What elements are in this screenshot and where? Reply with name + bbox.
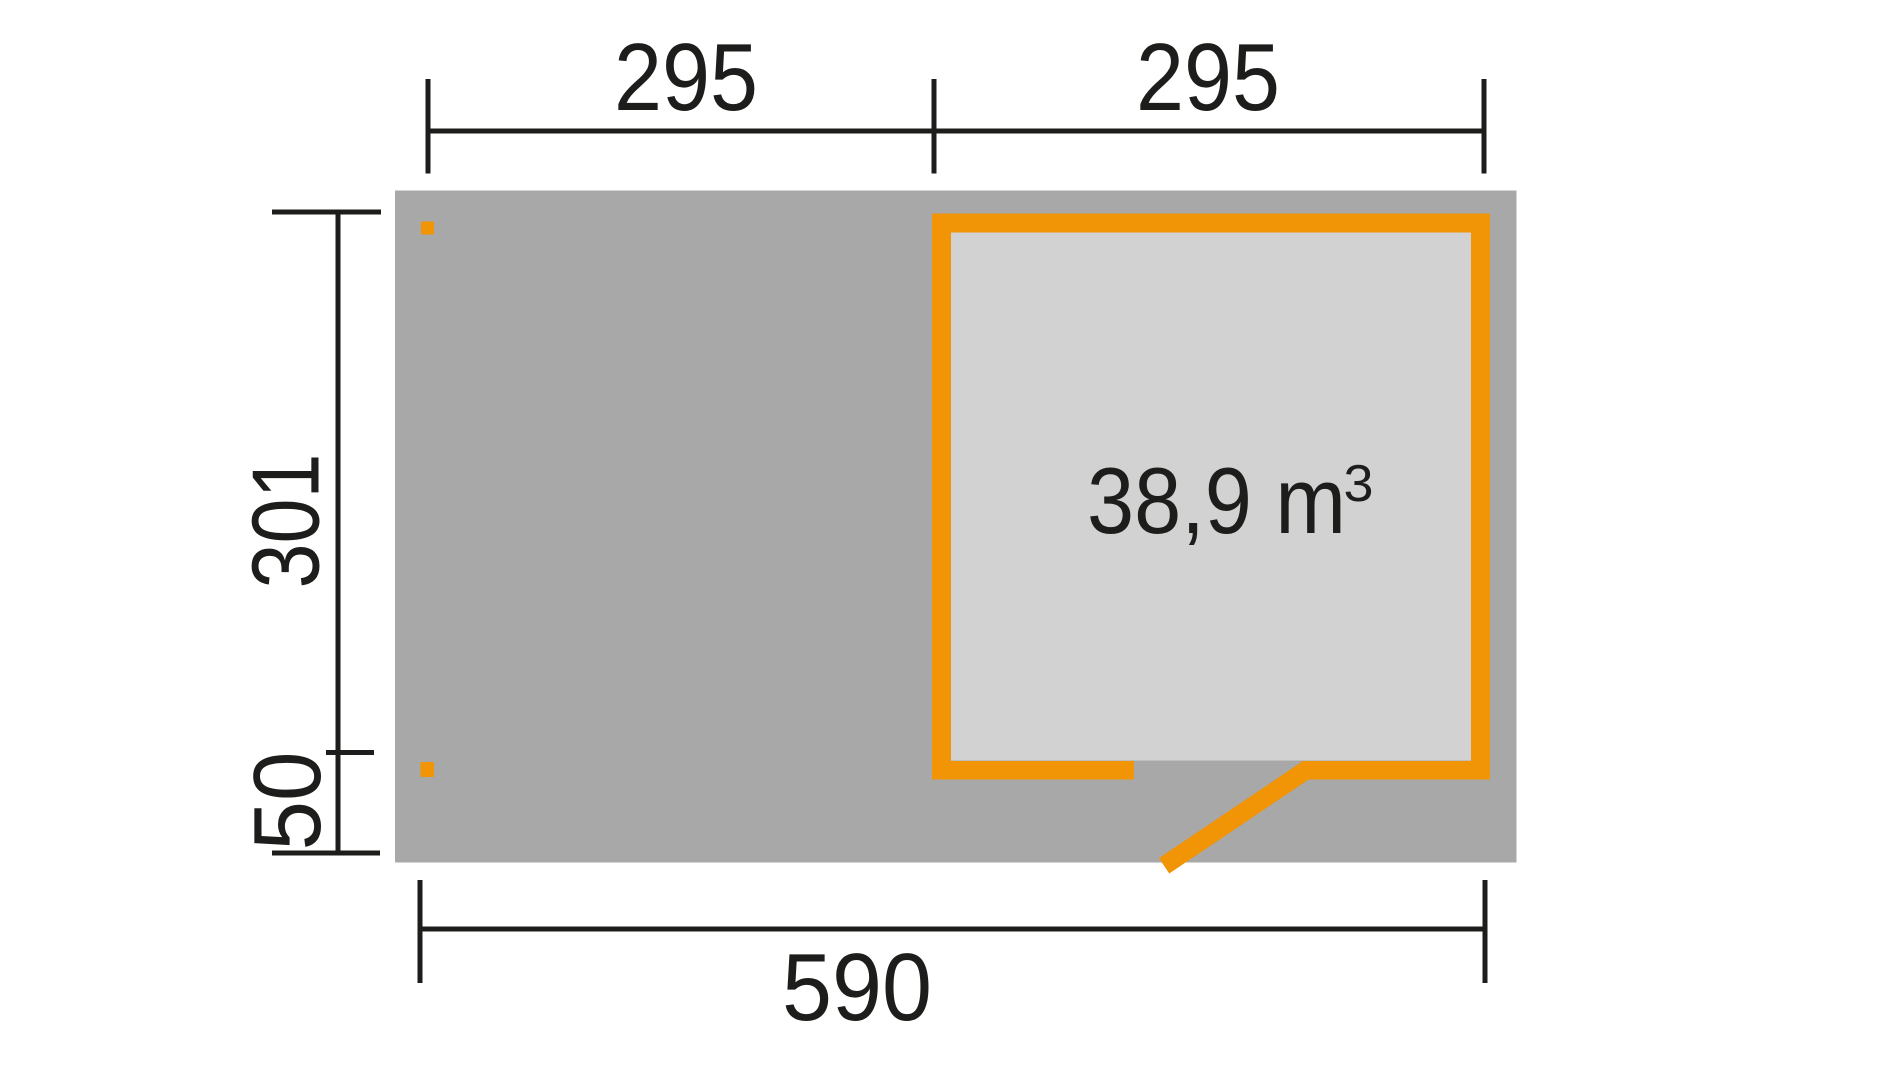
svg-text:38,9 m: 38,9 m [1087,448,1346,553]
svg-text:295: 295 [1136,24,1280,131]
svg-text:301: 301 [233,454,340,589]
svg-text:3: 3 [1344,455,1374,513]
svg-text:50: 50 [234,752,341,851]
svg-text:295: 295 [614,24,758,131]
svg-text:590: 590 [782,934,932,1041]
